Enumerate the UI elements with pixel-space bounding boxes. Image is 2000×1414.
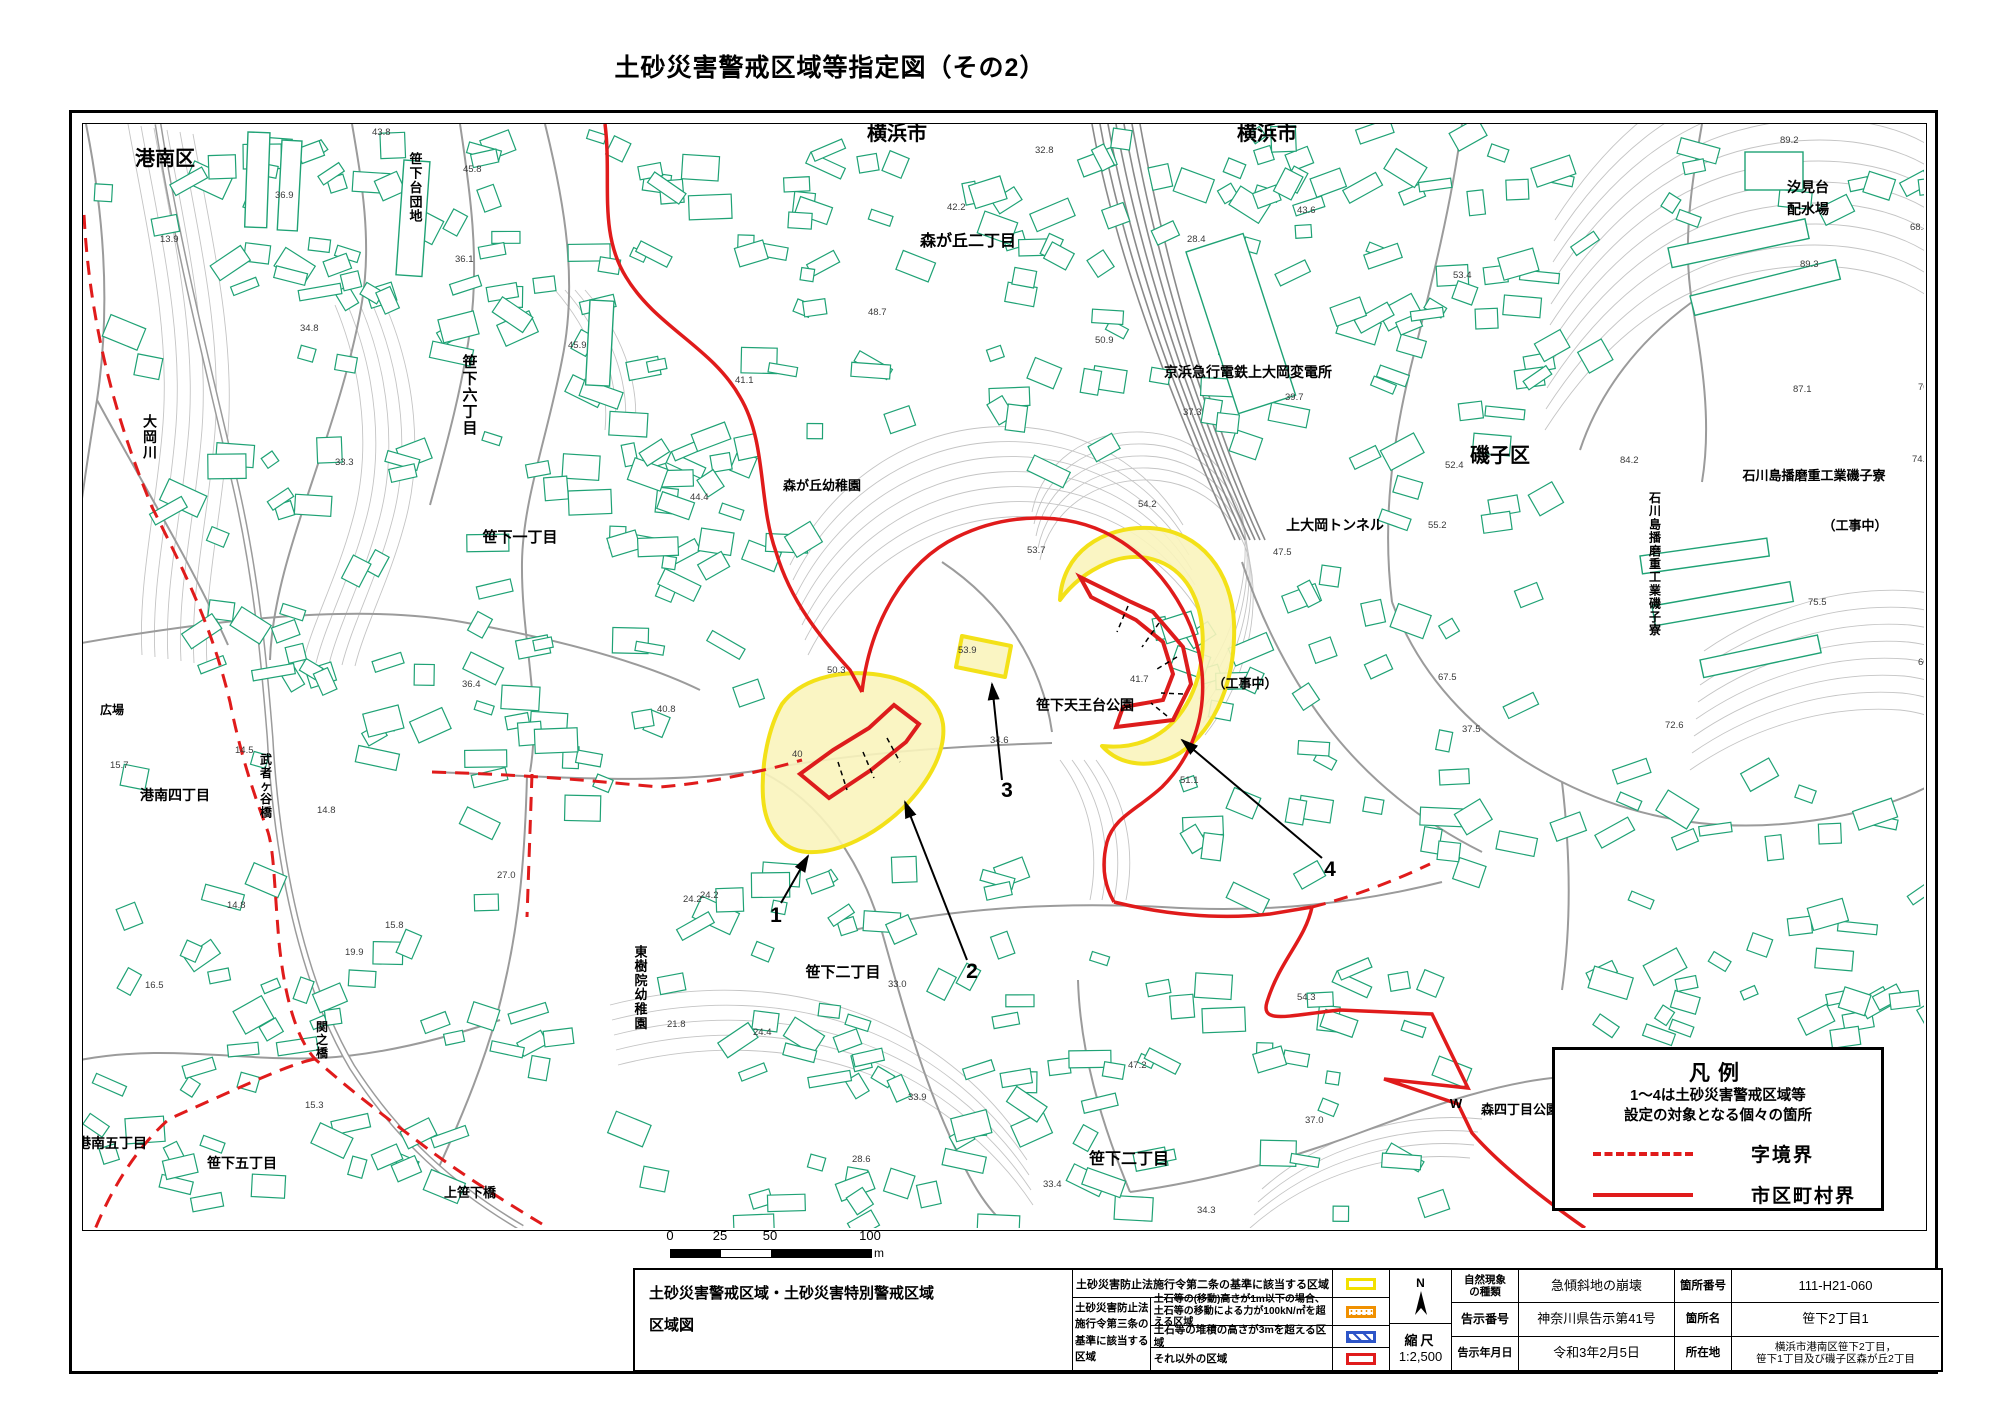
- spot-elevation: 47.5: [1273, 547, 1292, 558]
- field-label: 箇所番号: [1675, 1270, 1732, 1302]
- spot-elevation: 89.2: [1780, 135, 1799, 146]
- spot-elevation: 15.3: [305, 1100, 324, 1111]
- spot-elevation: 36.4: [462, 679, 481, 690]
- spot-elevation: 43.6: [1297, 205, 1316, 216]
- map-label: 谷: [260, 791, 273, 806]
- field-value: 神奈川県告示第41号: [1519, 1303, 1675, 1335]
- map-label: 重: [1649, 556, 1661, 571]
- map-label: （工事中）: [1822, 518, 1887, 533]
- law-article3-label: 土砂災害防止法 施行令第三条の 基準に該当する 区域: [1073, 1298, 1151, 1370]
- map-label: 之: [316, 1032, 328, 1047]
- map-label: 稚: [634, 1001, 647, 1016]
- spot-elevation: 33.3: [335, 457, 354, 468]
- north-arrow: N: [1390, 1270, 1451, 1324]
- map-label: 工: [1649, 570, 1661, 584]
- spot-elevation: 33.4: [1043, 1179, 1062, 1190]
- legend-item-label: 市区町村界: [1751, 1181, 1856, 1208]
- spot-elevation: 51.1: [1180, 775, 1199, 786]
- sheet-title-line2: 区域図: [649, 1310, 1072, 1342]
- map-label: 横浜市: [867, 124, 927, 145]
- yellow-zone-symbol: [1346, 1278, 1376, 1290]
- spot-elevation: 70.5: [1918, 382, 1924, 393]
- spot-elevation: 33.9: [908, 1092, 927, 1103]
- map-label: 港南区: [135, 146, 195, 170]
- legend-desc-line1: 1～4は土砂災害警戒区域等: [1555, 1087, 1881, 1107]
- spot-elevation: 44.4: [690, 492, 709, 503]
- map-label: 下: [409, 166, 422, 181]
- map-label: 寮: [1648, 622, 1662, 637]
- spot-elevation: 15.8: [385, 920, 404, 931]
- spot-elevation: 32.8: [1035, 145, 1054, 156]
- north-arrow-icon: [1412, 1289, 1430, 1317]
- spot-elevation: 36.1: [455, 254, 474, 265]
- spot-elevation: 14.8: [317, 805, 336, 816]
- spot-elevation: 24.4: [753, 1027, 772, 1038]
- map-label: 広場: [100, 702, 124, 717]
- spot-elevation: 50.9: [1095, 335, 1114, 346]
- spot-elevation: 50.3: [827, 665, 846, 676]
- spot-elevation: 24.2: [700, 890, 719, 901]
- callout-number: 1: [770, 904, 782, 927]
- map-label: 笹下天王台公園: [1035, 697, 1134, 713]
- spot-elevation: 41.7: [1130, 674, 1149, 685]
- spot-elevation: 37.5: [1462, 724, 1481, 735]
- spot-elevation: 34.6: [990, 735, 1009, 746]
- map-label: 下: [462, 371, 477, 388]
- spot-elevation: 52.4: [1445, 460, 1464, 471]
- map-label: 配水場: [1787, 201, 1829, 217]
- map-label: 上笹下橋: [444, 1185, 497, 1200]
- scale-unit: m: [874, 1246, 884, 1260]
- map-label: 園: [634, 1016, 647, 1031]
- map-label: 六: [462, 386, 477, 404]
- field-value: 横浜市港南区笹下2丁目， 笹下1丁目及び磯子区森が丘2丁目: [1732, 1337, 1939, 1370]
- map-label: 川: [142, 444, 157, 460]
- map-label: 団: [409, 194, 422, 209]
- spot-elevation: 34.3: [1197, 1205, 1216, 1216]
- solid-line-sample: [1593, 1193, 1693, 1197]
- spot-elevation: 47.2: [1128, 1060, 1147, 1071]
- spot-elevation: 68.3: [1910, 222, 1924, 233]
- map-label: （工事中）: [1212, 676, 1277, 691]
- spot-elevation: 87.1: [1793, 384, 1812, 395]
- scale-tick-0: 0: [666, 1228, 673, 1243]
- map-label: 石: [1648, 491, 1661, 505]
- map-label: 笹下二丁目: [805, 963, 880, 981]
- legend-box: 凡例 1～4は土砂災害警戒区域等 設定の対象となる個々の箇所 字境界 市区町村界: [1552, 1047, 1884, 1211]
- spot-elevation: 41.1: [735, 375, 754, 386]
- zone-symbol-column: [1333, 1270, 1390, 1370]
- map-label: 森四丁目公園: [1481, 1102, 1559, 1117]
- red-zone-symbol: [1346, 1353, 1376, 1365]
- spot-elevation: 43.8: [372, 127, 391, 138]
- map-label: 石川島播磨重工業磯子寮: [1741, 468, 1886, 483]
- map-label: 笹下五丁目: [206, 1155, 277, 1171]
- map-label: 子: [1649, 610, 1661, 624]
- field-label: 自然現象 の種類: [1452, 1270, 1519, 1302]
- legend-item-municipal-boundary: 市区町村界: [1593, 1181, 1881, 1208]
- map-label: 橋: [316, 1045, 329, 1060]
- spot-elevation: 84.2: [1620, 455, 1639, 466]
- map-label: 横浜市: [1237, 124, 1297, 145]
- zone-desc-row2: 土石等の(移動)高さが1m以下の場合、 土石等の移動による力が100kN/㎡を超…: [1151, 1298, 1332, 1326]
- map-label: 笹: [462, 353, 477, 371]
- spot-elevation: 27.0: [497, 870, 516, 881]
- spot-elevation: 39.7: [1285, 392, 1304, 403]
- map-label: 上大岡トンネル: [1286, 517, 1384, 533]
- spot-elevation: 60: [1918, 657, 1924, 668]
- field-value: 111-H21-060: [1732, 1270, 1939, 1302]
- map-sheet-title-cell: 土砂災害警戒区域・土砂災害特別警戒区域 区域図: [635, 1270, 1073, 1370]
- legend-desc-line2: 設定の対象となる個々の箇所: [1555, 1107, 1881, 1127]
- field-label: 告示番号: [1452, 1303, 1519, 1335]
- map-label: 幼: [634, 987, 647, 1002]
- map-label: 業: [1648, 582, 1662, 597]
- spot-elevation: 28.4: [1187, 234, 1206, 245]
- field-value: 笹下2丁目1: [1732, 1303, 1939, 1335]
- zone-classification-cell: 土砂災害防止法施行令第二条の基準に該当する区域 土砂災害防止法 施行令第三条の …: [1073, 1270, 1333, 1370]
- field-label: 箇所名: [1675, 1303, 1732, 1335]
- map-label: 院: [634, 973, 647, 988]
- spot-elevation: 33.0: [888, 979, 907, 990]
- map-label: 笹下二丁目: [1088, 1149, 1169, 1168]
- map-label: 目: [462, 420, 477, 437]
- map-label: 者: [259, 765, 272, 780]
- field-label: 告示年月日: [1452, 1337, 1519, 1370]
- map-label: 地: [409, 209, 422, 224]
- spot-elevation: 45.8: [463, 164, 482, 175]
- spot-elevation: 40.8: [657, 704, 676, 715]
- spot-elevation: 89.3: [1800, 259, 1819, 270]
- scale-tick-50: 50: [763, 1228, 777, 1243]
- map-label: 樹: [634, 959, 647, 974]
- map-label: 川: [1648, 504, 1661, 518]
- map-label: 汐見台: [1787, 179, 1829, 195]
- spot-elevation: 53.7: [1027, 545, 1046, 556]
- scale-tick-100: 100: [859, 1228, 881, 1243]
- map-label: 港南五丁目: [83, 1135, 147, 1151]
- spot-elevation: 36.9: [275, 190, 294, 201]
- spot-elevation: 21.8: [667, 1019, 686, 1030]
- field-value: 急傾斜地の崩壊: [1519, 1270, 1675, 1302]
- map-label: 大: [143, 414, 157, 430]
- map-label: 武: [260, 752, 272, 767]
- spot-elevation: 40: [792, 749, 803, 760]
- spot-elevation: 48.7: [868, 307, 887, 318]
- map-label: 笹下一丁目: [482, 528, 557, 546]
- spot-elevation: 74.1: [1912, 454, 1924, 465]
- spot-elevation: 55.2: [1428, 520, 1447, 531]
- north-scale-column: N 縮尺 1:2,500: [1390, 1270, 1452, 1370]
- spot-elevation: 14.8: [227, 900, 246, 911]
- spot-elevation: 54.3: [1297, 992, 1316, 1003]
- map-label: 磯: [1649, 596, 1661, 611]
- map-label: ヶ: [260, 779, 272, 793]
- dashed-line-sample: [1593, 1152, 1693, 1156]
- map-label: 磯子区: [1470, 443, 1530, 467]
- spot-elevation: 24.2: [683, 894, 702, 905]
- spot-elevation: 37.3: [1183, 407, 1202, 418]
- map-label: 森が丘二丁目: [920, 231, 1016, 250]
- spot-elevation: 72.6: [1665, 720, 1684, 731]
- spot-elevation: 15.7: [110, 760, 129, 771]
- spot-elevation: 34.8: [300, 323, 319, 334]
- map-label: 播: [1649, 530, 1662, 545]
- scale-label: 縮尺: [1404, 1330, 1436, 1349]
- spot-elevation: 19.9: [345, 947, 364, 958]
- spot-elevation: 37.0: [1305, 1115, 1324, 1126]
- blue-hatched-zone-symbol: [1346, 1331, 1376, 1343]
- map-label: 関: [316, 1020, 328, 1034]
- field-label: 所在地: [1675, 1337, 1732, 1370]
- spot-elevation: 54.2: [1138, 499, 1157, 510]
- scale-cell: 縮尺 1:2,500: [1390, 1324, 1451, 1370]
- legend-item-label: 字境界: [1751, 1140, 1814, 1167]
- spot-elevation: 75.5: [1808, 597, 1827, 608]
- spot-elevation: 67.5: [1438, 672, 1457, 683]
- scale-bar-segments: [670, 1249, 872, 1258]
- callout-number: 3: [1001, 779, 1013, 802]
- spot-elevation: 42.2: [947, 202, 966, 213]
- zone-desc-row3: 土石等の堆積の高さが3mを超える区域: [1151, 1326, 1332, 1348]
- north-letter: N: [1416, 1277, 1425, 1289]
- page-title: 土砂災害警戒区域等指定図（その2）: [570, 48, 1090, 84]
- zone-desc-row4: それ以外の区域: [1151, 1348, 1332, 1370]
- info-table: 土砂災害警戒区域・土砂災害特別警戒区域 区域図 土砂災害防止法施行令第二条の基準…: [633, 1268, 1943, 1372]
- spot-elevation: 16.5: [145, 980, 164, 991]
- scale-value: 1:2,500: [1399, 1349, 1442, 1364]
- spot-elevation: 53.4: [1453, 270, 1472, 281]
- field-value: 令和3年2月5日: [1519, 1337, 1675, 1370]
- map-label: 橋: [260, 804, 273, 819]
- spot-elevation: 13.9: [160, 234, 179, 245]
- legend-item-aza-boundary: 字境界: [1593, 1140, 1881, 1167]
- map-label: 岡: [143, 429, 157, 445]
- scale-tick-25: 25: [713, 1228, 727, 1243]
- map-label: 台: [409, 180, 422, 195]
- map-label: 京浜急行電鉄上大岡変電所: [1164, 364, 1332, 380]
- spot-elevation: 45.9: [568, 340, 587, 351]
- map-label: 島: [1649, 516, 1661, 531]
- sheet-title-line1: 土砂災害警戒区域・土砂災害特別警戒区域: [649, 1278, 1072, 1310]
- spot-elevation: 53.9: [958, 645, 977, 656]
- callout-number: 4: [1324, 858, 1336, 881]
- spot-elevation: 28.6: [852, 1154, 871, 1165]
- map-label: 笹: [409, 151, 422, 166]
- map-label: 東: [634, 944, 647, 959]
- map-label: W: [1450, 1096, 1463, 1111]
- scale-bar: 0 25 50 100 m: [655, 1228, 905, 1268]
- map-label: 磨: [1648, 543, 1661, 558]
- orange-dotted-zone-symbol: [1346, 1306, 1376, 1318]
- map-label: 森が丘幼稚園: [783, 478, 861, 493]
- callout-number: 2: [966, 960, 978, 983]
- legend-title: 凡例: [1555, 1057, 1881, 1087]
- designation-details-table: 自然現象 の種類 急傾斜地の崩壊 箇所番号 111-H21-060 告示番号 神…: [1452, 1270, 1939, 1370]
- hazard-map-document: { "title": "土砂災害警戒区域等指定図（その2）", "legend"…: [0, 0, 2000, 1414]
- spot-elevation: 14.5: [235, 745, 254, 756]
- map-label: 丁: [462, 404, 477, 421]
- map-label: 港南四丁目: [140, 787, 210, 803]
